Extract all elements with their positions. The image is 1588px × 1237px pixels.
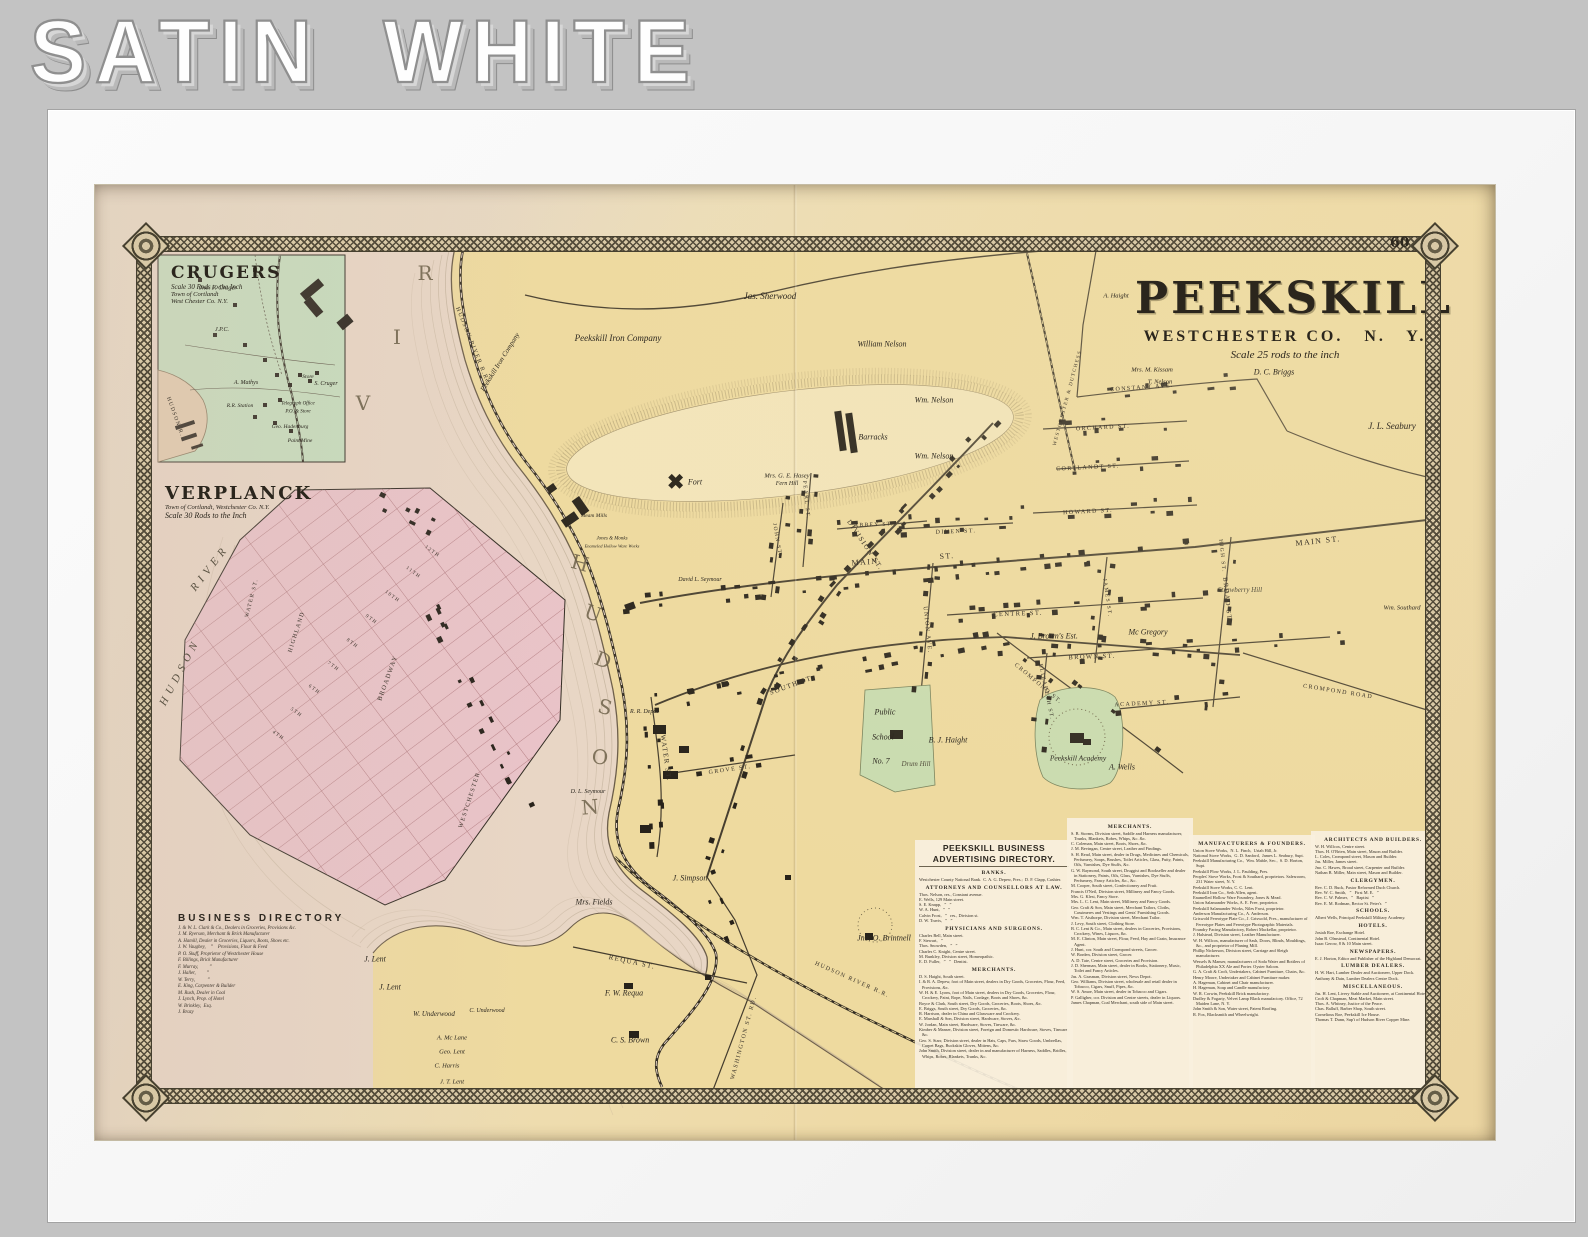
ornamental-border-bottom <box>136 1088 1441 1104</box>
directory-entry: Geo. S. Starr, Division street, dealer i… <box>919 1038 1069 1049</box>
map-label: W. Underwood <box>413 1010 455 1018</box>
directory-entry: Thomas T. Dunn, Sup't of Hudson River Co… <box>1315 1017 1431 1022</box>
map-label: Steam Mills <box>581 513 607 519</box>
crugers-title: CRUGERS <box>171 263 281 283</box>
map-label: Peekskill Academy <box>1050 754 1106 763</box>
verplanck-title: VERPLANCK <box>165 483 312 504</box>
directory-entry: Griswold Fereotype Plate Co., J. Griswol… <box>1193 916 1311 927</box>
directory-section-header: NEWSPAPERS. <box>1315 949 1431 955</box>
map-label: Fern Hill <box>776 481 799 487</box>
directory-entry: Geo. Craft & Son, Main street, Merchant … <box>1071 905 1189 916</box>
directory-entry: I. & R. A. Depew, foot of Main street, d… <box>919 979 1069 990</box>
directory-entry: W. H. Willcox, manufacturer of Sash, Doo… <box>1193 938 1311 949</box>
ornamental-border-top <box>136 236 1441 252</box>
directory-section-header: ATTORNEYS AND COUNSELLORS AT LAW. <box>919 885 1069 891</box>
map-label: C. Harris <box>435 1063 460 1070</box>
map-label: V <box>356 391 370 415</box>
verplanck-directory-title: BUSINESS DIRECTORY <box>178 913 408 924</box>
map-subtitle: WESTCHESTER CO. N. Y. <box>1135 328 1435 346</box>
directory-section-header: MERCHANTS. <box>1071 824 1189 830</box>
map-title-block: PEEKSKILL WESTCHESTER CO. N. Y. Scale 25… <box>1135 273 1435 361</box>
directory-entry: Anthony & Dain, Lumber Dealers Centre Do… <box>1315 976 1431 981</box>
map-label: Jno. O. Brintnell <box>857 934 911 943</box>
directory-entry: D. W. Travis, ” ” <box>919 918 1069 923</box>
map-label: Drum Hill <box>902 760 931 768</box>
directory-entry: S. H. Read, Main street, dealer in Drugs… <box>1071 852 1189 868</box>
directory-section-header: PHYSICIANS AND SURGEONS. <box>919 926 1069 932</box>
map-label: Wm. Southard <box>1384 605 1421 612</box>
map-label: Geo. Lent <box>439 1049 465 1056</box>
directory-section-header: SCHOOLS. <box>1315 908 1431 914</box>
crugers-county: West Chester Co. N.Y. <box>171 298 281 305</box>
map-label: Jno. F. Cruger <box>199 285 237 292</box>
map-label: Wm. Nelson <box>915 452 954 461</box>
map-label: J. Lent <box>364 955 386 964</box>
verplanck-town: Town of Cortlandt, Westchester Co. N.Y. <box>165 504 312 511</box>
map-label: School <box>872 733 894 742</box>
map-label: J. Brown's Est. <box>1030 632 1078 641</box>
map-label: C. S. Brown <box>611 1036 649 1045</box>
directory-entry: Rev. E. M. Rodman, Rector St. Peter's ” <box>1315 901 1431 906</box>
map-label: Wm. Nelson <box>915 396 954 405</box>
map-label: J. T. Lent <box>440 1079 464 1086</box>
directory-entry: Geo. Williams, Division street, wholesal… <box>1071 979 1189 990</box>
directory-entry: E. J. Horton, Editor and Publisher of th… <box>1315 956 1431 961</box>
map-label: ST. <box>939 551 955 561</box>
map-label: B. J. Haight <box>929 736 968 745</box>
screenshot-root: { "banner": {"title": "SATIN WHITE"}, "p… <box>0 0 1588 1237</box>
map-label: William Nelson <box>857 340 906 349</box>
directory-entry: Westchester County National Bank. C. A. … <box>919 877 1069 882</box>
directory-section-header: MISCELLANEOUS. <box>1315 984 1431 990</box>
ornamental-border-right <box>1425 236 1441 1104</box>
directory-entry: Peoples' Stove Works, Frost & Southard, … <box>1193 874 1311 885</box>
map-label: J.P.C. <box>215 327 229 333</box>
peekskill-directory-col2: MERCHANTS.S. B. Storms, Division street,… <box>1067 818 1193 1091</box>
map-label: A. Mc Lane <box>437 1035 467 1042</box>
verplanck-directory-entries: J. & W. L. Clark & Co., Dealers in Groce… <box>178 926 408 1017</box>
frame-style-title: SATIN WHITE <box>30 0 699 108</box>
map-label: Store <box>302 374 313 380</box>
peekskill-directory-col1: PEEKSKILL BUSINESS ADVERTISING DIRECTORY… <box>915 840 1073 1091</box>
directory-entry: John Smith, Division street, dealer in a… <box>919 1048 1069 1059</box>
directory-section-header: ARCHITECTS AND BUILDERS. <box>1315 837 1431 843</box>
directory-entry: R. Fox, Blacksmith and Wheelwright. <box>1193 1012 1311 1017</box>
directory-entry: Nathan B. Miller, Main street, Mason and… <box>1315 870 1431 875</box>
map-label: F. W. Requa <box>605 989 643 998</box>
directory-entry: M. E. Clinton, Main street, Flour, Feed,… <box>1071 936 1189 947</box>
map-scale: Scale 25 rods to the inch <box>1135 349 1435 361</box>
map-label: Telegraph Office <box>281 402 315 407</box>
map-label: Paint Mine <box>288 438 313 444</box>
map-label: Fort <box>688 478 702 487</box>
map-label: C. Underwood <box>469 1008 504 1014</box>
directory-section-header: HOTELS. <box>1315 923 1431 929</box>
directory-entry: Isaac Gerow, 8 & 10 Main street. <box>1315 941 1431 946</box>
directory-entry: J. Brazy <box>178 1010 408 1016</box>
directory-entry: G. W. Raymond, South street, Druggist an… <box>1071 868 1189 884</box>
peekskill-directory-title: PEEKSKILL BUSINESS ADVERTISING DIRECTORY… <box>919 843 1069 867</box>
map-label: Barracks <box>858 433 887 442</box>
directory-entry: Peekskill Manufacturing Co., Wm. Mable, … <box>1193 858 1311 869</box>
map-label: O <box>591 744 609 769</box>
map-label: A. Haight <box>1103 293 1128 300</box>
map-label: J. L. Seabury <box>1368 421 1416 431</box>
map-label: J. Simpson <box>673 874 708 883</box>
map-label: J. Lent <box>379 983 401 992</box>
map-label: S. Cruger <box>314 381 337 387</box>
directory-entry: S. B. Storms, Division street, Saddle an… <box>1071 831 1189 842</box>
directory-section-header: BANKS. <box>919 870 1069 876</box>
directory-entry: E. D. Fuller, ” ” Dentist. <box>919 959 1069 964</box>
map-label: Jas. Sherwood <box>744 291 797 301</box>
directory-section-header: LUMBER DEALERS. <box>1315 963 1431 969</box>
map-label: R <box>417 261 432 285</box>
map-label: D. C. Briggs <box>1254 368 1294 377</box>
map-label: D. L. Seymour <box>571 789 606 795</box>
directory-entry: B. C. Lent & Co., Main street, dealers i… <box>1071 926 1189 937</box>
directory-entry: J. D. Sherman, Main street, dealer in Bo… <box>1071 963 1189 974</box>
map-label: Public <box>875 708 896 717</box>
map-label: Mrs. M. Kissam <box>1131 367 1173 374</box>
verplanck-business-directory: BUSINESS DIRECTORY J. & W. L. Clark & Co… <box>178 913 408 1017</box>
directory-section-header: CLERGYMEN. <box>1315 878 1431 884</box>
map-label: A. Wells <box>1109 763 1135 772</box>
map-label: P.O. & Store <box>285 410 310 415</box>
map-label: Mrs. Fields <box>576 898 613 907</box>
directory-entry: G. A. Craft & Croft, Undertakers, Cabine… <box>1193 969 1311 974</box>
directory-section-header: MANUFACTURERS & FOUNDERS. <box>1193 841 1311 847</box>
directory-entry: James Chapman, Coal Merchant, south side… <box>1071 1000 1189 1005</box>
map-label: David L. Seymour <box>678 577 722 583</box>
crugers-town: Town of Cortlandt <box>171 291 281 298</box>
map-label: R. R. Depot <box>630 709 658 715</box>
peekskill-directory-col4: ARCHITECTS AND BUILDERS.W. H. Willcox, C… <box>1311 831 1435 1091</box>
map-label: R.R. Station <box>227 403 253 409</box>
directory-entry: Albert Wells, Principal Peekskill Milita… <box>1315 915 1431 920</box>
map-label: Geo. Hadenburg <box>272 424 309 430</box>
map-label: I <box>393 325 401 349</box>
directory-entry: H. W. Hart, Lumber Dealer and Auctioneer… <box>1315 970 1431 975</box>
picture-frame: PEEKSKILL PEEKSKILL WESTCHESTER CO. N. Y… <box>48 110 1575 1222</box>
directory-entry: W. H. & E. Lyons, foot of Main street, d… <box>919 990 1069 1001</box>
peekskill-directory-col3: MANUFACTURERS & FOUNDERS.Union Stove Wor… <box>1189 835 1315 1091</box>
directory-section-header: MERCHANTS. <box>919 967 1069 973</box>
directory-entry: Wessels & Manser, manufacturers of Soda … <box>1193 959 1311 970</box>
verplanck-title-block: VERPLANCK Town of Cortlandt, Westchester… <box>165 483 312 520</box>
map-label: Mrs. G. E. Hasey <box>764 473 809 480</box>
map-title: PEEKSKILL <box>1135 273 1435 324</box>
verplanck-scale: Scale 30 Rods to the Inch <box>165 511 312 520</box>
ornamental-border-left <box>136 236 152 1104</box>
map-label: A. Mathys <box>234 380 258 386</box>
map-label: No. 7 <box>872 757 889 766</box>
map-label: Enameled Hollow Ware Works <box>585 544 640 549</box>
directory-entry: Phillip Nickerson, Division street, Carr… <box>1193 948 1311 959</box>
map-label: N <box>580 794 600 819</box>
directory-entry: Dudley & Fogarty, Velvet Lamp Black manu… <box>1193 996 1311 1007</box>
map-sheet: PEEKSKILL PEEKSKILL WESTCHESTER CO. N. Y… <box>95 185 1495 1140</box>
map-label: Peekskill Iron Company <box>575 333 662 343</box>
page-number: 60 <box>1390 235 1409 251</box>
map-label: Mc Gregory <box>1128 628 1167 637</box>
map-label: Jones & Monks <box>596 537 627 542</box>
directory-entry: Kimber & Manser, Division street, Foreig… <box>919 1027 1069 1038</box>
